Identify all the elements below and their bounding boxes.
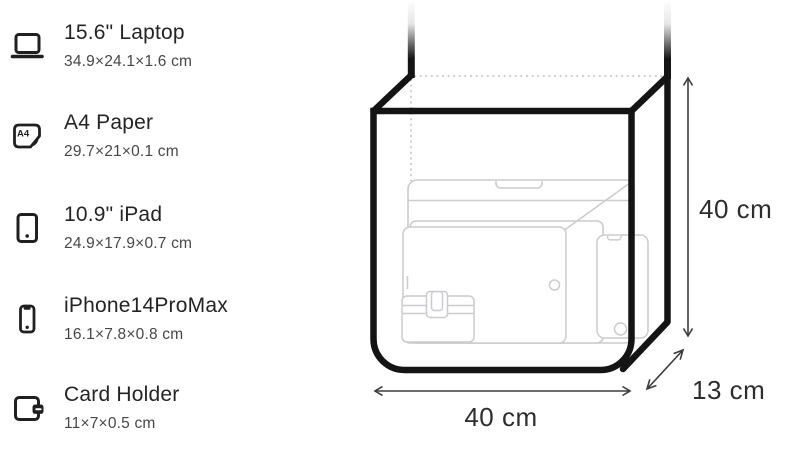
size-comparison-infographic: 15.6" Laptop 34.9×24.1×1.6 cm A4 A4 Pape…: [0, 0, 800, 455]
ghost-card-holder-clasp: [427, 292, 448, 318]
laptop-handle-notch: [496, 181, 542, 188]
depth-arrow: [647, 350, 683, 389]
bag-top-right-edge: [632, 77, 668, 112]
depth-dimension-label: 13 cm: [692, 375, 765, 405]
width-arrow: [375, 387, 630, 396]
height-arrow: [684, 78, 693, 336]
width-dimension-label: 40 cm: [464, 402, 537, 432]
bag-top-left-edge: [374, 76, 412, 112]
hidden-back-edges: [411, 76, 664, 181]
height-dimension-label: 40 cm: [699, 194, 772, 224]
ghost-card-holder: [402, 292, 474, 343]
left-strap: [408, 0, 415, 78]
bag-illustration: 15.6 A4: [0, 0, 800, 455]
right-strap: [664, 0, 671, 79]
ghost-iphone: [597, 235, 648, 338]
